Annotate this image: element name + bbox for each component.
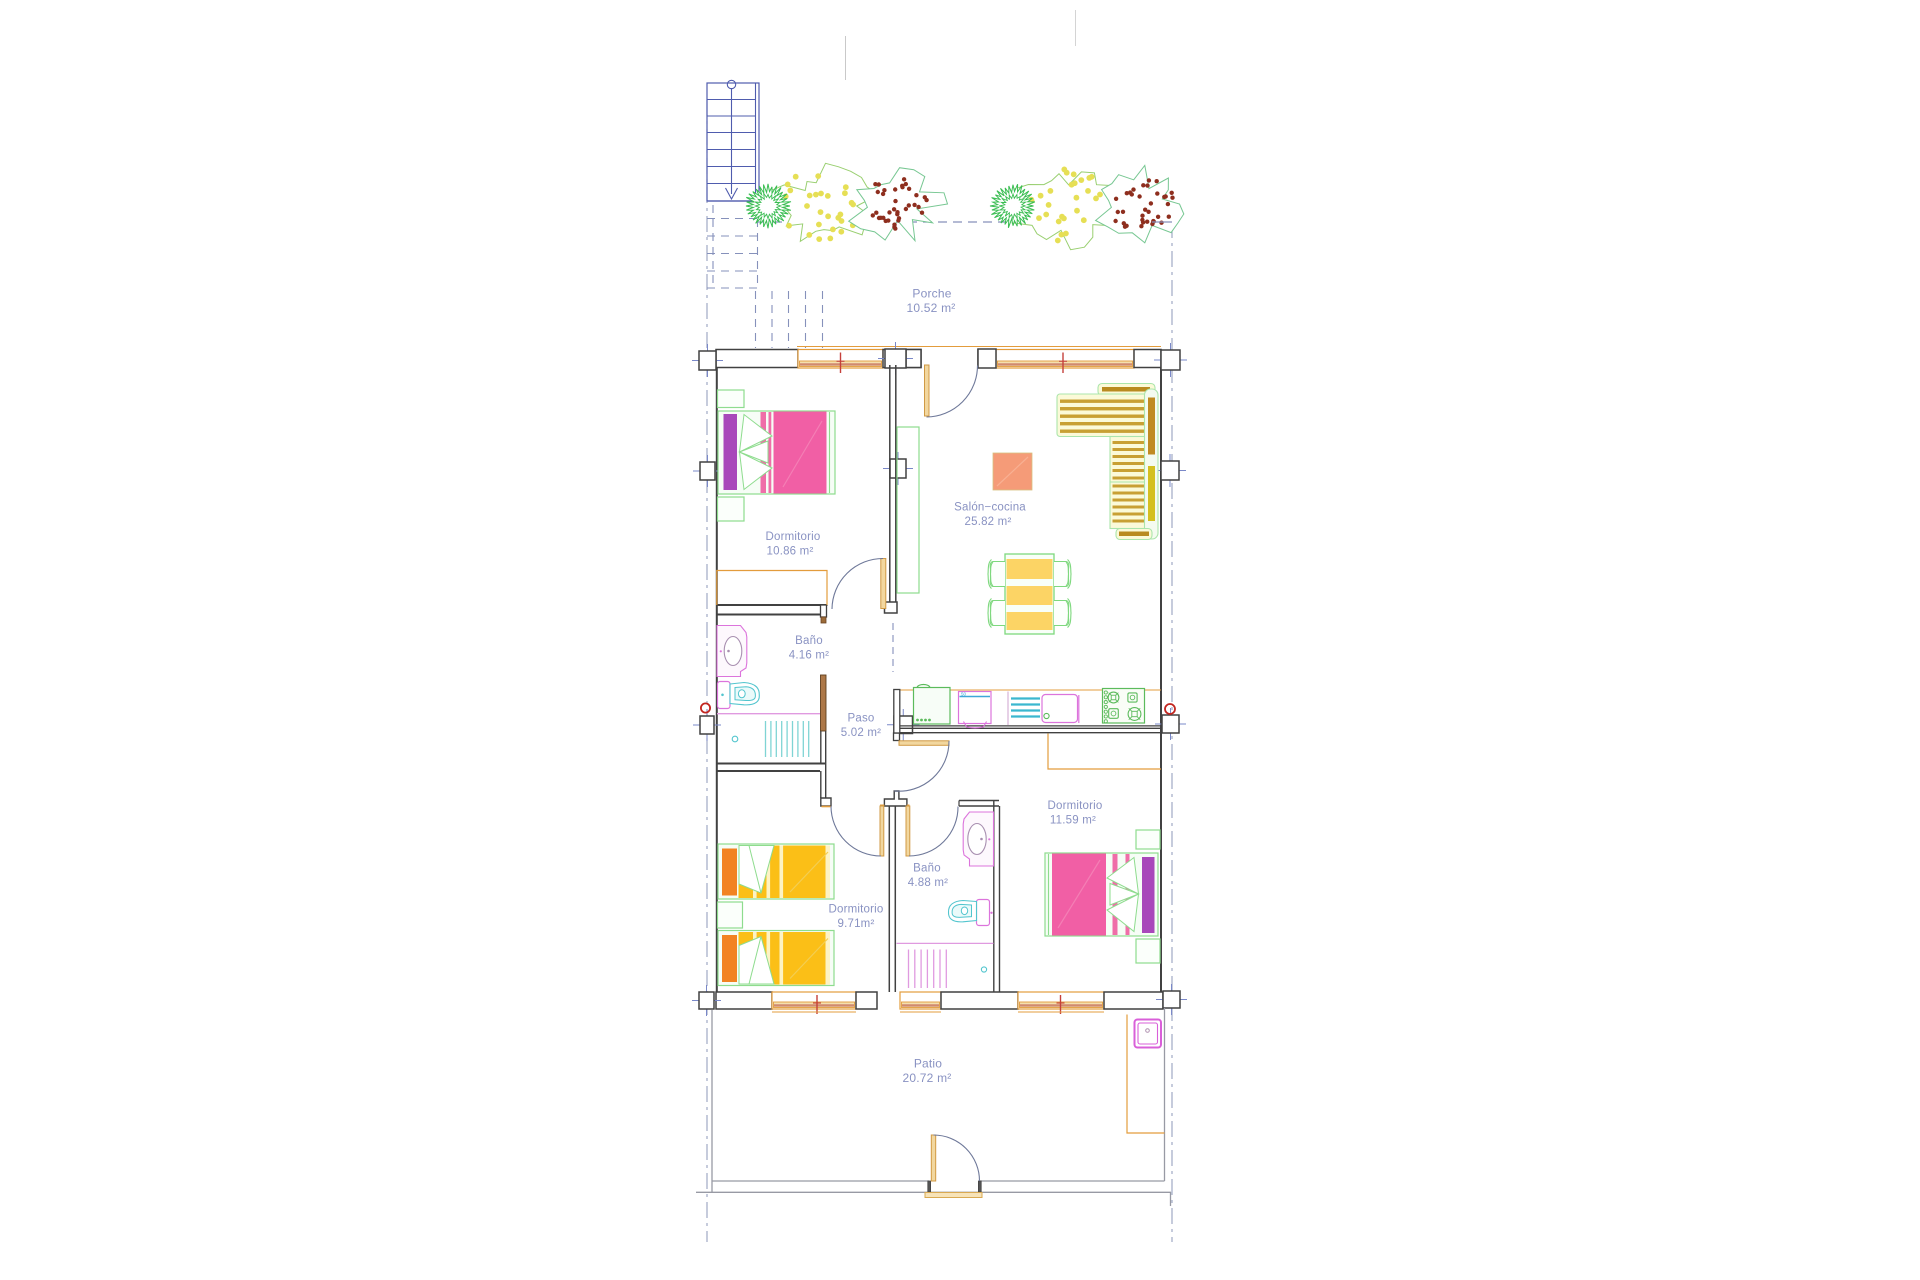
svg-text:Baño: Baño: [795, 635, 823, 647]
svg-text:11.59 m²: 11.59 m²: [1050, 815, 1096, 827]
svg-text:Porche: Porche: [912, 287, 951, 301]
svg-text:50: 50: [961, 692, 967, 697]
svg-text:10.86 m²: 10.86 m²: [767, 546, 814, 558]
svg-text:Dormitorio: Dormitorio: [1047, 800, 1102, 812]
svg-text:Patio: Patio: [914, 1057, 942, 1071]
svg-text:9.71m²: 9.71m²: [838, 918, 875, 930]
svg-text:25.82 m²: 25.82 m²: [965, 516, 1012, 528]
svg-text:Dormitorio: Dormitorio: [828, 904, 883, 916]
svg-text:4.88 m²: 4.88 m²: [908, 877, 948, 889]
svg-text:10.52 m²: 10.52 m²: [907, 301, 956, 315]
svg-text:Dormitorio: Dormitorio: [765, 531, 820, 543]
svg-text:20.72 m²: 20.72 m²: [903, 1071, 952, 1085]
svg-text:4.16 m²: 4.16 m²: [789, 650, 829, 662]
svg-text:Paso: Paso: [847, 713, 874, 725]
svg-text:5.02 m²: 5.02 m²: [841, 727, 881, 739]
svg-text:Salón−cocina: Salón−cocina: [954, 502, 1026, 514]
svg-text:Baño: Baño: [913, 863, 941, 875]
